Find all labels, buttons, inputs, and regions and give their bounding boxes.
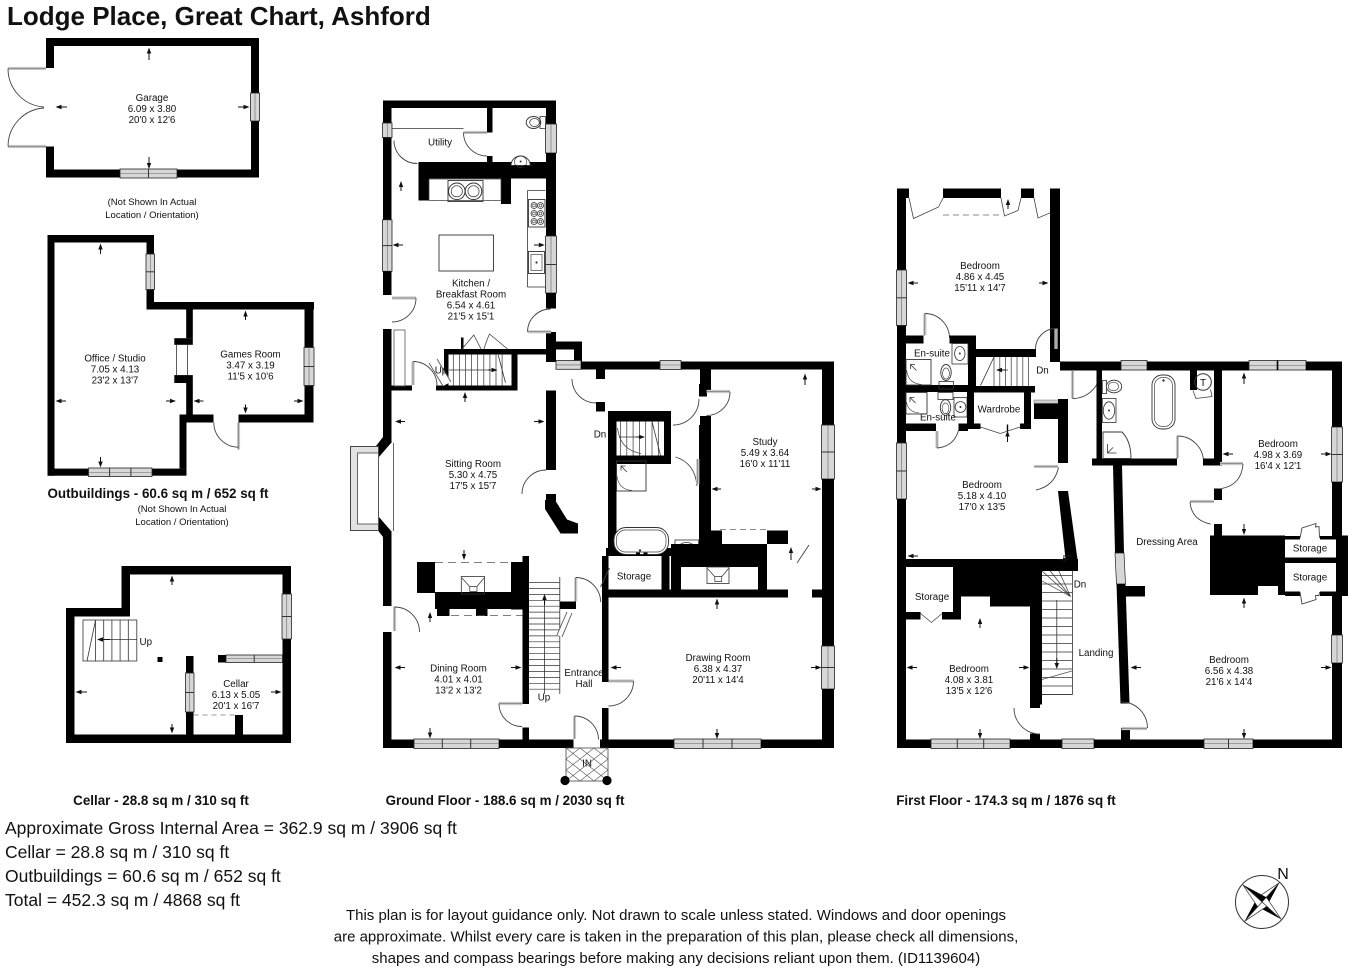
svg-text:20'11 x 14'4: 20'11 x 14'4 [692, 675, 744, 686]
svg-text:This plan is for layout guidan: This plan is for layout guidance only. N… [346, 907, 1006, 924]
svg-text:5.30 x 4.75: 5.30 x 4.75 [449, 470, 498, 481]
svg-text:Location / Orientation): Location / Orientation) [105, 210, 198, 221]
svg-text:Bedroom: Bedroom [962, 480, 1002, 491]
svg-text:Up: Up [538, 693, 551, 704]
svg-text:Dressing Area: Dressing Area [1136, 537, 1198, 548]
svg-text:20'0 x 12'6: 20'0 x 12'6 [129, 115, 176, 126]
svg-text:23'2 x 13'7: 23'2 x 13'7 [92, 376, 139, 387]
svg-text:4.01 x 4.01: 4.01 x 4.01 [434, 675, 482, 686]
svg-text:17'0 x 13'5: 17'0 x 13'5 [959, 502, 1006, 513]
svg-text:13'5 x 12'6: 13'5 x 12'6 [946, 686, 993, 697]
svg-text:Hall: Hall [576, 679, 593, 690]
svg-text:Storage: Storage [617, 572, 652, 583]
svg-text:21'6 x 14'4: 21'6 x 14'4 [1206, 677, 1253, 688]
svg-text:Office / Studio: Office / Studio [84, 354, 146, 365]
svg-text:IN: IN [582, 759, 592, 770]
svg-text:Bedroom: Bedroom [1258, 439, 1298, 450]
svg-text:Wardrobe: Wardrobe [978, 405, 1021, 416]
svg-text:shapes and compass bearings be: shapes and compass bearings before makin… [372, 950, 980, 967]
svg-text:Up: Up [435, 366, 448, 377]
svg-text:Location / Orientation): Location / Orientation) [135, 517, 228, 528]
svg-text:Landing: Landing [1079, 648, 1114, 659]
svg-text:Entrance: Entrance [564, 668, 604, 679]
svg-text:Utility: Utility [428, 138, 452, 149]
svg-text:Cellar - 28.8 sq m / 310 sq ft: Cellar - 28.8 sq m / 310 sq ft [73, 793, 249, 808]
svg-text:6.56 x 4.38: 6.56 x 4.38 [1205, 666, 1254, 677]
svg-text:Sitting Room: Sitting Room [445, 459, 501, 470]
svg-text:Garage: Garage [136, 93, 169, 104]
svg-text:6.54 x 4.61: 6.54 x 4.61 [447, 301, 495, 312]
svg-text:20'1 x 16'7: 20'1 x 16'7 [213, 701, 260, 712]
svg-text:6.13 x 5.05: 6.13 x 5.05 [212, 690, 261, 701]
svg-text:Cellar = 28.8 sq m / 310 sq ft: Cellar = 28.8 sq m / 310 sq ft [5, 842, 229, 862]
svg-text:4.86 x 4.45: 4.86 x 4.45 [956, 272, 1005, 283]
svg-text:T: T [1200, 378, 1206, 389]
svg-text:7.05 x 4.13: 7.05 x 4.13 [91, 365, 140, 376]
svg-text:Bedroom: Bedroom [960, 261, 1000, 272]
svg-text:Total = 452.3 sq m / 4868 sq f: Total = 452.3 sq m / 4868 sq ft [5, 890, 240, 910]
svg-text:Dn: Dn [594, 430, 607, 441]
svg-text:(Not Shown In Actual: (Not Shown In Actual [108, 197, 197, 208]
svg-text:Bedroom: Bedroom [949, 664, 989, 675]
svg-text:15'11 x 14'7: 15'11 x 14'7 [954, 283, 1006, 294]
svg-text:Breakfast Room: Breakfast Room [436, 290, 506, 301]
svg-text:21'5 x 15'1: 21'5 x 15'1 [448, 312, 495, 323]
svg-text:Games Room: Games Room [220, 350, 280, 361]
svg-text:13'2 x 13'2: 13'2 x 13'2 [435, 686, 482, 697]
svg-text:11'5 x 10'6: 11'5 x 10'6 [227, 372, 274, 383]
svg-text:17'5 x 15'7: 17'5 x 15'7 [450, 481, 497, 492]
svg-text:Dn: Dn [1036, 366, 1049, 377]
svg-text:6.09 x 3.80: 6.09 x 3.80 [128, 104, 177, 115]
svg-text:6.38 x 4.37: 6.38 x 4.37 [694, 664, 742, 675]
svg-text:(Not Shown In Actual: (Not Shown In Actual [138, 504, 227, 515]
svg-text:Drawing Room: Drawing Room [686, 653, 751, 664]
svg-text:Storage: Storage [1293, 573, 1328, 584]
svg-text:5.18 x 4.10: 5.18 x 4.10 [958, 491, 1007, 502]
svg-text:4.98 x 3.69: 4.98 x 3.69 [1254, 450, 1302, 461]
svg-text:Ground Floor - 188.6 sq m / 20: Ground Floor - 188.6 sq m / 2030 sq ft [386, 793, 625, 808]
svg-text:En-suite: En-suite [914, 349, 950, 360]
svg-text:Up: Up [140, 637, 153, 648]
svg-text:3.47 x 3.19: 3.47 x 3.19 [226, 361, 274, 372]
svg-text:are approximate. Whilst every: are approximate. Whilst every care is ta… [334, 929, 1019, 946]
svg-text:Approximate Gross Internal Are: Approximate Gross Internal Area = 362.9 … [5, 818, 457, 838]
svg-text:5.49 x 3.64: 5.49 x 3.64 [741, 448, 790, 459]
svg-text:4.08 x 3.81: 4.08 x 3.81 [945, 675, 993, 686]
svg-text:First Floor - 174.3 sq m / 187: First Floor - 174.3 sq m / 1876 sq ft [896, 793, 1116, 808]
svg-text:16'4 x 12'1: 16'4 x 12'1 [1255, 461, 1302, 472]
svg-text:Cellar: Cellar [223, 679, 249, 690]
svg-text:16'0 x 11'11: 16'0 x 11'11 [740, 459, 791, 470]
svg-text:Storage: Storage [1293, 544, 1328, 555]
svg-text:Bedroom: Bedroom [1209, 655, 1249, 666]
svg-text:Outbuildings - 60.6 sq m / 652: Outbuildings - 60.6 sq m / 652 sq ft [48, 486, 270, 501]
svg-text:Lodge Place, Great Chart, Ashf: Lodge Place, Great Chart, Ashford [7, 1, 431, 31]
svg-text:N: N [1277, 866, 1289, 883]
svg-text:Dn: Dn [1074, 580, 1087, 591]
svg-text:Study: Study [752, 437, 777, 448]
svg-text:Storage: Storage [915, 592, 950, 603]
svg-text:Outbuildings = 60.6 sq m / 652: Outbuildings = 60.6 sq m / 652 sq ft [5, 866, 281, 886]
svg-text:Kitchen /: Kitchen / [452, 279, 490, 290]
svg-text:En-suite: En-suite [920, 413, 956, 424]
svg-text:Dining Room: Dining Room [430, 664, 487, 675]
